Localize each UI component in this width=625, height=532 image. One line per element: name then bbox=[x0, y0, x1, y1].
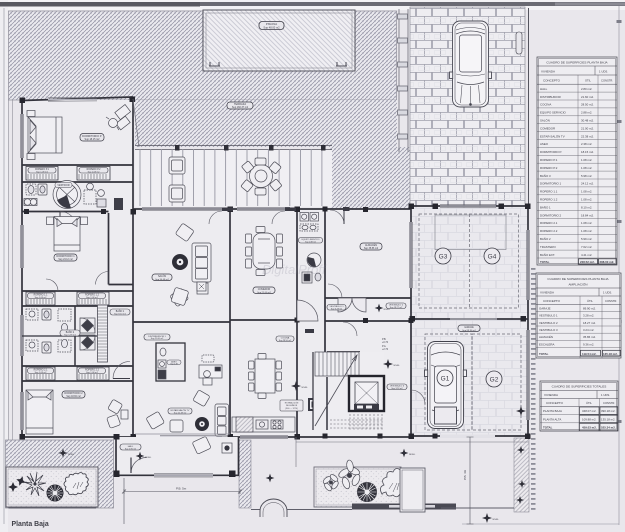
svg-text:COMEDOR: COMEDOR bbox=[258, 288, 271, 291]
svg-text:NIVEL: NIVEL bbox=[493, 519, 500, 521]
svg-text:TOTAL: TOTAL bbox=[540, 260, 550, 264]
svg-text:Sup 1.08 m2: Sup 1.08 m2 bbox=[35, 372, 48, 374]
svg-text:Sup 21.00 m2: Sup 21.00 m2 bbox=[257, 292, 271, 294]
svg-text:ROPERO 2.1: ROPERO 2.1 bbox=[540, 221, 558, 225]
svg-text:5.98 m2.: 5.98 m2. bbox=[581, 174, 592, 178]
svg-text:CONSTR.: CONSTR. bbox=[605, 299, 617, 303]
svg-text:ASEO: ASEO bbox=[540, 142, 549, 146]
svg-text:Sup 1.08 m2: Sup 1.08 m2 bbox=[88, 172, 101, 174]
svg-text:Sup 3.24 m2: Sup 3.24 m2 bbox=[391, 388, 403, 390]
svg-text:CONSTR.: CONSTR. bbox=[601, 79, 613, 83]
svg-text:1 UDS.: 1 UDS. bbox=[601, 393, 610, 397]
svg-text:390.18 m2.: 390.18 m2. bbox=[601, 409, 616, 413]
svg-text:18.15 m2.: 18.15 m2. bbox=[581, 150, 594, 154]
svg-text:COCINA: COCINA bbox=[540, 103, 551, 107]
svg-text:DISTRIBUIDOR: DISTRIBUIDOR bbox=[540, 95, 561, 99]
svg-text:ÚTIL: ÚTIL bbox=[586, 401, 592, 405]
svg-text:21.60 m2.: 21.60 m2. bbox=[581, 95, 594, 99]
svg-text:G3: G3 bbox=[439, 254, 448, 261]
svg-text:1 UDS.: 1 UDS. bbox=[603, 291, 612, 295]
svg-text:TOTAL: TOTAL bbox=[539, 352, 549, 356]
svg-text:Sup 2.38: Sup 2.38 bbox=[170, 363, 177, 365]
svg-text:5.99 m2.: 5.99 m2. bbox=[581, 237, 592, 241]
svg-text:89.90 m2.: 89.90 m2. bbox=[583, 307, 596, 311]
svg-text:HALL: HALL bbox=[540, 87, 548, 91]
svg-text:22.38 m2.: 22.38 m2. bbox=[581, 134, 594, 138]
svg-text:Sup 18.15 m2: Sup 18.15 m2 bbox=[85, 138, 101, 141]
svg-text:NIVEL: NIVEL bbox=[384, 309, 391, 311]
svg-text:BAÑO EXT.: BAÑO EXT. bbox=[540, 252, 555, 257]
svg-text:Sup 1.08 m2: Sup 1.08 m2 bbox=[86, 372, 99, 374]
svg-text:ROPERO 1.1: ROPERO 1.1 bbox=[540, 190, 558, 194]
svg-text:Sup 3.28 m2: Sup 3.28 m2 bbox=[331, 309, 343, 311]
svg-text:18.84 m2.: 18.84 m2. bbox=[581, 213, 594, 217]
svg-text:Sup 18.27 m2: Sup 18.27 m2 bbox=[390, 307, 403, 309]
svg-text:Sup 1.08 m2: Sup 1.08 m2 bbox=[36, 172, 49, 174]
svg-text:1.08 m2.: 1.08 m2. bbox=[581, 166, 592, 170]
svg-text:Planta Baja: Planta Baja bbox=[12, 521, 49, 528]
svg-text:ROPERO 2.2: ROPERO 2.2 bbox=[540, 229, 558, 233]
svg-text:G2: G2 bbox=[490, 377, 499, 384]
svg-text:EXTRACCIÓN: EXTRACCIÓN bbox=[285, 402, 299, 405]
svg-text:BAÑO 3: BAÑO 3 bbox=[540, 173, 551, 178]
svg-text:ALMACÉN: ALMACÉN bbox=[539, 334, 553, 339]
svg-text:TRASTERO: TRASTERO bbox=[540, 245, 556, 249]
svg-text:Sup 182.37 m2: Sup 182.37 m2 bbox=[232, 106, 249, 109]
svg-text:3.28 m2.: 3.28 m2. bbox=[583, 314, 594, 318]
svg-text:ROPERO P.1: ROPERO P.1 bbox=[540, 158, 558, 162]
svg-text:288.00 m2.: 288.00 m2. bbox=[600, 260, 615, 264]
svg-text:Sup 21.60 m2: Sup 21.60 m2 bbox=[151, 338, 164, 340]
svg-text:ROPERO 1.2: ROPERO 1.2 bbox=[540, 198, 558, 202]
svg-text:CUADRO DE SUPERFICIES PLANT: CUADRO DE SUPERFICIES PLANTA BAJA bbox=[546, 61, 608, 65]
svg-text:18.27 m2.: 18.27 m2. bbox=[583, 321, 596, 325]
svg-text:SALÓN: SALÓN bbox=[540, 118, 550, 123]
svg-text:1 UDS.: 1 UDS. bbox=[599, 70, 608, 74]
svg-text:ESTAR-SALÓN TV: ESTAR-SALÓN TV bbox=[540, 133, 565, 138]
svg-text:1.08 m2.: 1.08 m2. bbox=[581, 229, 592, 233]
svg-text:GARAJE: GARAJE bbox=[539, 307, 551, 311]
svg-text:ALMACÉN: ALMACÉN bbox=[365, 244, 377, 247]
svg-text:525.34 m2.: 525.34 m2. bbox=[601, 426, 616, 430]
svg-text:Sup 35.86 m2: Sup 35.86 m2 bbox=[364, 248, 379, 250]
svg-text:Sup 28.50 m2: Sup 28.50 m2 bbox=[279, 340, 292, 342]
svg-text:COMEDOR: COMEDOR bbox=[540, 126, 555, 130]
svg-text:AMPLIACIÓN: AMPLIACIÓN bbox=[568, 282, 587, 287]
svg-text:DORMITORIO 2: DORMITORIO 2 bbox=[64, 392, 83, 395]
svg-text:1.08 m2.: 1.08 m2. bbox=[581, 158, 592, 162]
svg-text:VESTIDOR: VESTIDOR bbox=[57, 184, 69, 187]
svg-text:NIVEL: NIVEL bbox=[394, 365, 401, 367]
svg-text:GARAJE: GARAJE bbox=[464, 326, 474, 329]
svg-text:DORMITORIO 1: DORMITORIO 1 bbox=[56, 255, 75, 258]
svg-text:P.B. 5m: P.B. 5m bbox=[176, 487, 187, 491]
svg-text:CONCEPTO: CONCEPTO bbox=[546, 401, 564, 405]
svg-text:DORMITORIO P.: DORMITORIO P. bbox=[540, 150, 562, 154]
svg-text:1.08 m2.: 1.08 m2. bbox=[581, 190, 592, 194]
svg-text:3.24 m2.: 3.24 m2. bbox=[583, 328, 594, 332]
svg-text:CONCEPTO: CONCEPTO bbox=[543, 299, 561, 303]
svg-text:4.41 m2.: 4.41 m2. bbox=[581, 253, 592, 257]
svg-text:Sup 89.90 m2: Sup 89.90 m2 bbox=[462, 330, 476, 332]
svg-text:135.18 m2.: 135.18 m2. bbox=[603, 352, 618, 356]
svg-text:BAÑO 1: BAÑO 1 bbox=[540, 204, 551, 209]
svg-text:G4: G4 bbox=[488, 254, 497, 261]
svg-text:CUADRO DE SUPERFICIES TOTAL: CUADRO DE SUPERFICIES TOTALES bbox=[552, 385, 607, 389]
svg-text:VIVIENDA: VIVIENDA bbox=[541, 70, 555, 74]
svg-text:TOTAL: TOTAL bbox=[543, 426, 553, 430]
svg-text:(300 → 1270): (300 → 1270) bbox=[285, 408, 298, 410]
svg-text:DORMITORIO 1: DORMITORIO 1 bbox=[540, 182, 562, 186]
svg-text:BAÑO 2: BAÑO 2 bbox=[540, 236, 551, 241]
svg-text:1.08 m2.: 1.08 m2. bbox=[581, 198, 592, 202]
svg-text:2.38 m2.: 2.38 m2. bbox=[581, 142, 592, 146]
svg-text:Sup 2.80 m2: Sup 2.80 m2 bbox=[125, 448, 137, 450]
svg-text:P.B. 4m: P.B. 4m bbox=[463, 469, 467, 480]
svg-text:CONCEPTO: CONCEPTO bbox=[543, 79, 561, 83]
svg-text:ÚTIL: ÚTIL bbox=[585, 79, 591, 83]
svg-text:Sup 8.10 m2: Sup 8.10 m2 bbox=[114, 313, 127, 315]
svg-text:2.88 m2.: 2.88 m2. bbox=[581, 111, 592, 115]
svg-text:NIVEL: NIVEL bbox=[302, 387, 309, 389]
svg-text:28.50 m2.: 28.50 m2. bbox=[581, 103, 594, 107]
svg-text:VESTIBULO 2: VESTIBULO 2 bbox=[539, 321, 558, 325]
svg-text:ÚTIL: ÚTIL bbox=[587, 299, 593, 303]
svg-text:228.52 m2.: 228.52 m2. bbox=[580, 260, 595, 264]
svg-text:PISCINA: PISCINA bbox=[266, 22, 277, 26]
svg-text:VESTIBULO 1: VESTIBULO 1 bbox=[539, 314, 558, 318]
svg-text:Sup 30.48 m2: Sup 30.48 m2 bbox=[155, 279, 169, 281]
svg-text:DE HUMOS: DE HUMOS bbox=[286, 405, 298, 407]
svg-text:9.36 m2.: 9.36 m2. bbox=[583, 342, 594, 346]
svg-text:DORMITORIO 2: DORMITORIO 2 bbox=[540, 213, 562, 217]
svg-text:VIVIENDA: VIVIENDA bbox=[544, 393, 558, 397]
svg-text:Sup 22.38 m2: Sup 22.38 m2 bbox=[174, 412, 187, 414]
svg-text:SALÓN: SALÓN bbox=[158, 275, 166, 278]
svg-text:8.10 m2.: 8.10 m2. bbox=[581, 205, 592, 209]
svg-text:EQUIPO SERVICIO: EQUIPO SERVICIO bbox=[540, 111, 567, 115]
svg-text:NIVEL: NIVEL bbox=[145, 457, 152, 459]
svg-text:109.88 m2.: 109.88 m2. bbox=[582, 417, 597, 421]
svg-text:NIVEL: NIVEL bbox=[409, 454, 416, 456]
svg-text:21.00 m2.: 21.00 m2. bbox=[581, 126, 594, 130]
svg-text:ROPERO P.2: ROPERO P.2 bbox=[540, 166, 558, 170]
svg-text:DigitalProff: DigitalProff bbox=[262, 262, 327, 277]
svg-text:VIVIENDA: VIVIENDA bbox=[540, 291, 554, 295]
svg-text:35.86 m2.: 35.86 m2. bbox=[583, 335, 596, 339]
svg-text:Sup 48.00 m2: Sup 48.00 m2 bbox=[263, 25, 280, 29]
svg-text:Sup 1.08 m2: Sup 1.08 m2 bbox=[86, 297, 99, 299]
svg-text:Sup 5.99 m2: Sup 5.99 m2 bbox=[64, 334, 77, 336]
svg-text:348.07 m2.: 348.07 m2. bbox=[582, 409, 597, 413]
svg-text:30.48 m2.: 30.48 m2. bbox=[581, 119, 594, 123]
svg-text:VESTIBULO 3: VESTIBULO 3 bbox=[539, 328, 558, 332]
svg-text:+0.70: +0.70 bbox=[382, 341, 389, 344]
svg-text:Sup 1.08 m2: Sup 1.08 m2 bbox=[35, 297, 48, 299]
svg-text:7.62 m2.: 7.62 m2. bbox=[581, 245, 592, 249]
svg-text:NIVEL: NIVEL bbox=[68, 454, 75, 456]
svg-text:119.54 m2.: 119.54 m2. bbox=[582, 352, 597, 356]
svg-text:459.03 m2.: 459.03 m2. bbox=[582, 426, 597, 430]
svg-text:ESCALERA: ESCALERA bbox=[539, 342, 554, 346]
svg-text:Sup 24.12 m2: Sup 24.12 m2 bbox=[58, 259, 73, 261]
svg-text:PLANTA ALTA: PLANTA ALTA bbox=[543, 417, 561, 421]
svg-text:24.12 m2.: 24.12 m2. bbox=[581, 182, 594, 186]
svg-text:CUADRO DE SUPERFICIES PLANT: CUADRO DE SUPERFICIES PLANTA BAJA bbox=[547, 277, 609, 281]
svg-text:+2.70: +2.70 bbox=[382, 348, 389, 351]
svg-text:Sup 2.88 m2: Sup 2.88 m2 bbox=[305, 241, 316, 243]
svg-text:CONSTR.: CONSTR. bbox=[603, 401, 615, 405]
svg-text:135.18 m2.: 135.18 m2. bbox=[601, 417, 616, 421]
svg-text:PLANTA BAJA: PLANTA BAJA bbox=[543, 409, 562, 413]
svg-text:G1: G1 bbox=[441, 376, 450, 383]
svg-text:2.80 m2.: 2.80 m2. bbox=[581, 87, 592, 91]
svg-text:1.08 m2.: 1.08 m2. bbox=[581, 221, 592, 225]
svg-text:Sup 18.84 m2: Sup 18.84 m2 bbox=[66, 396, 81, 398]
